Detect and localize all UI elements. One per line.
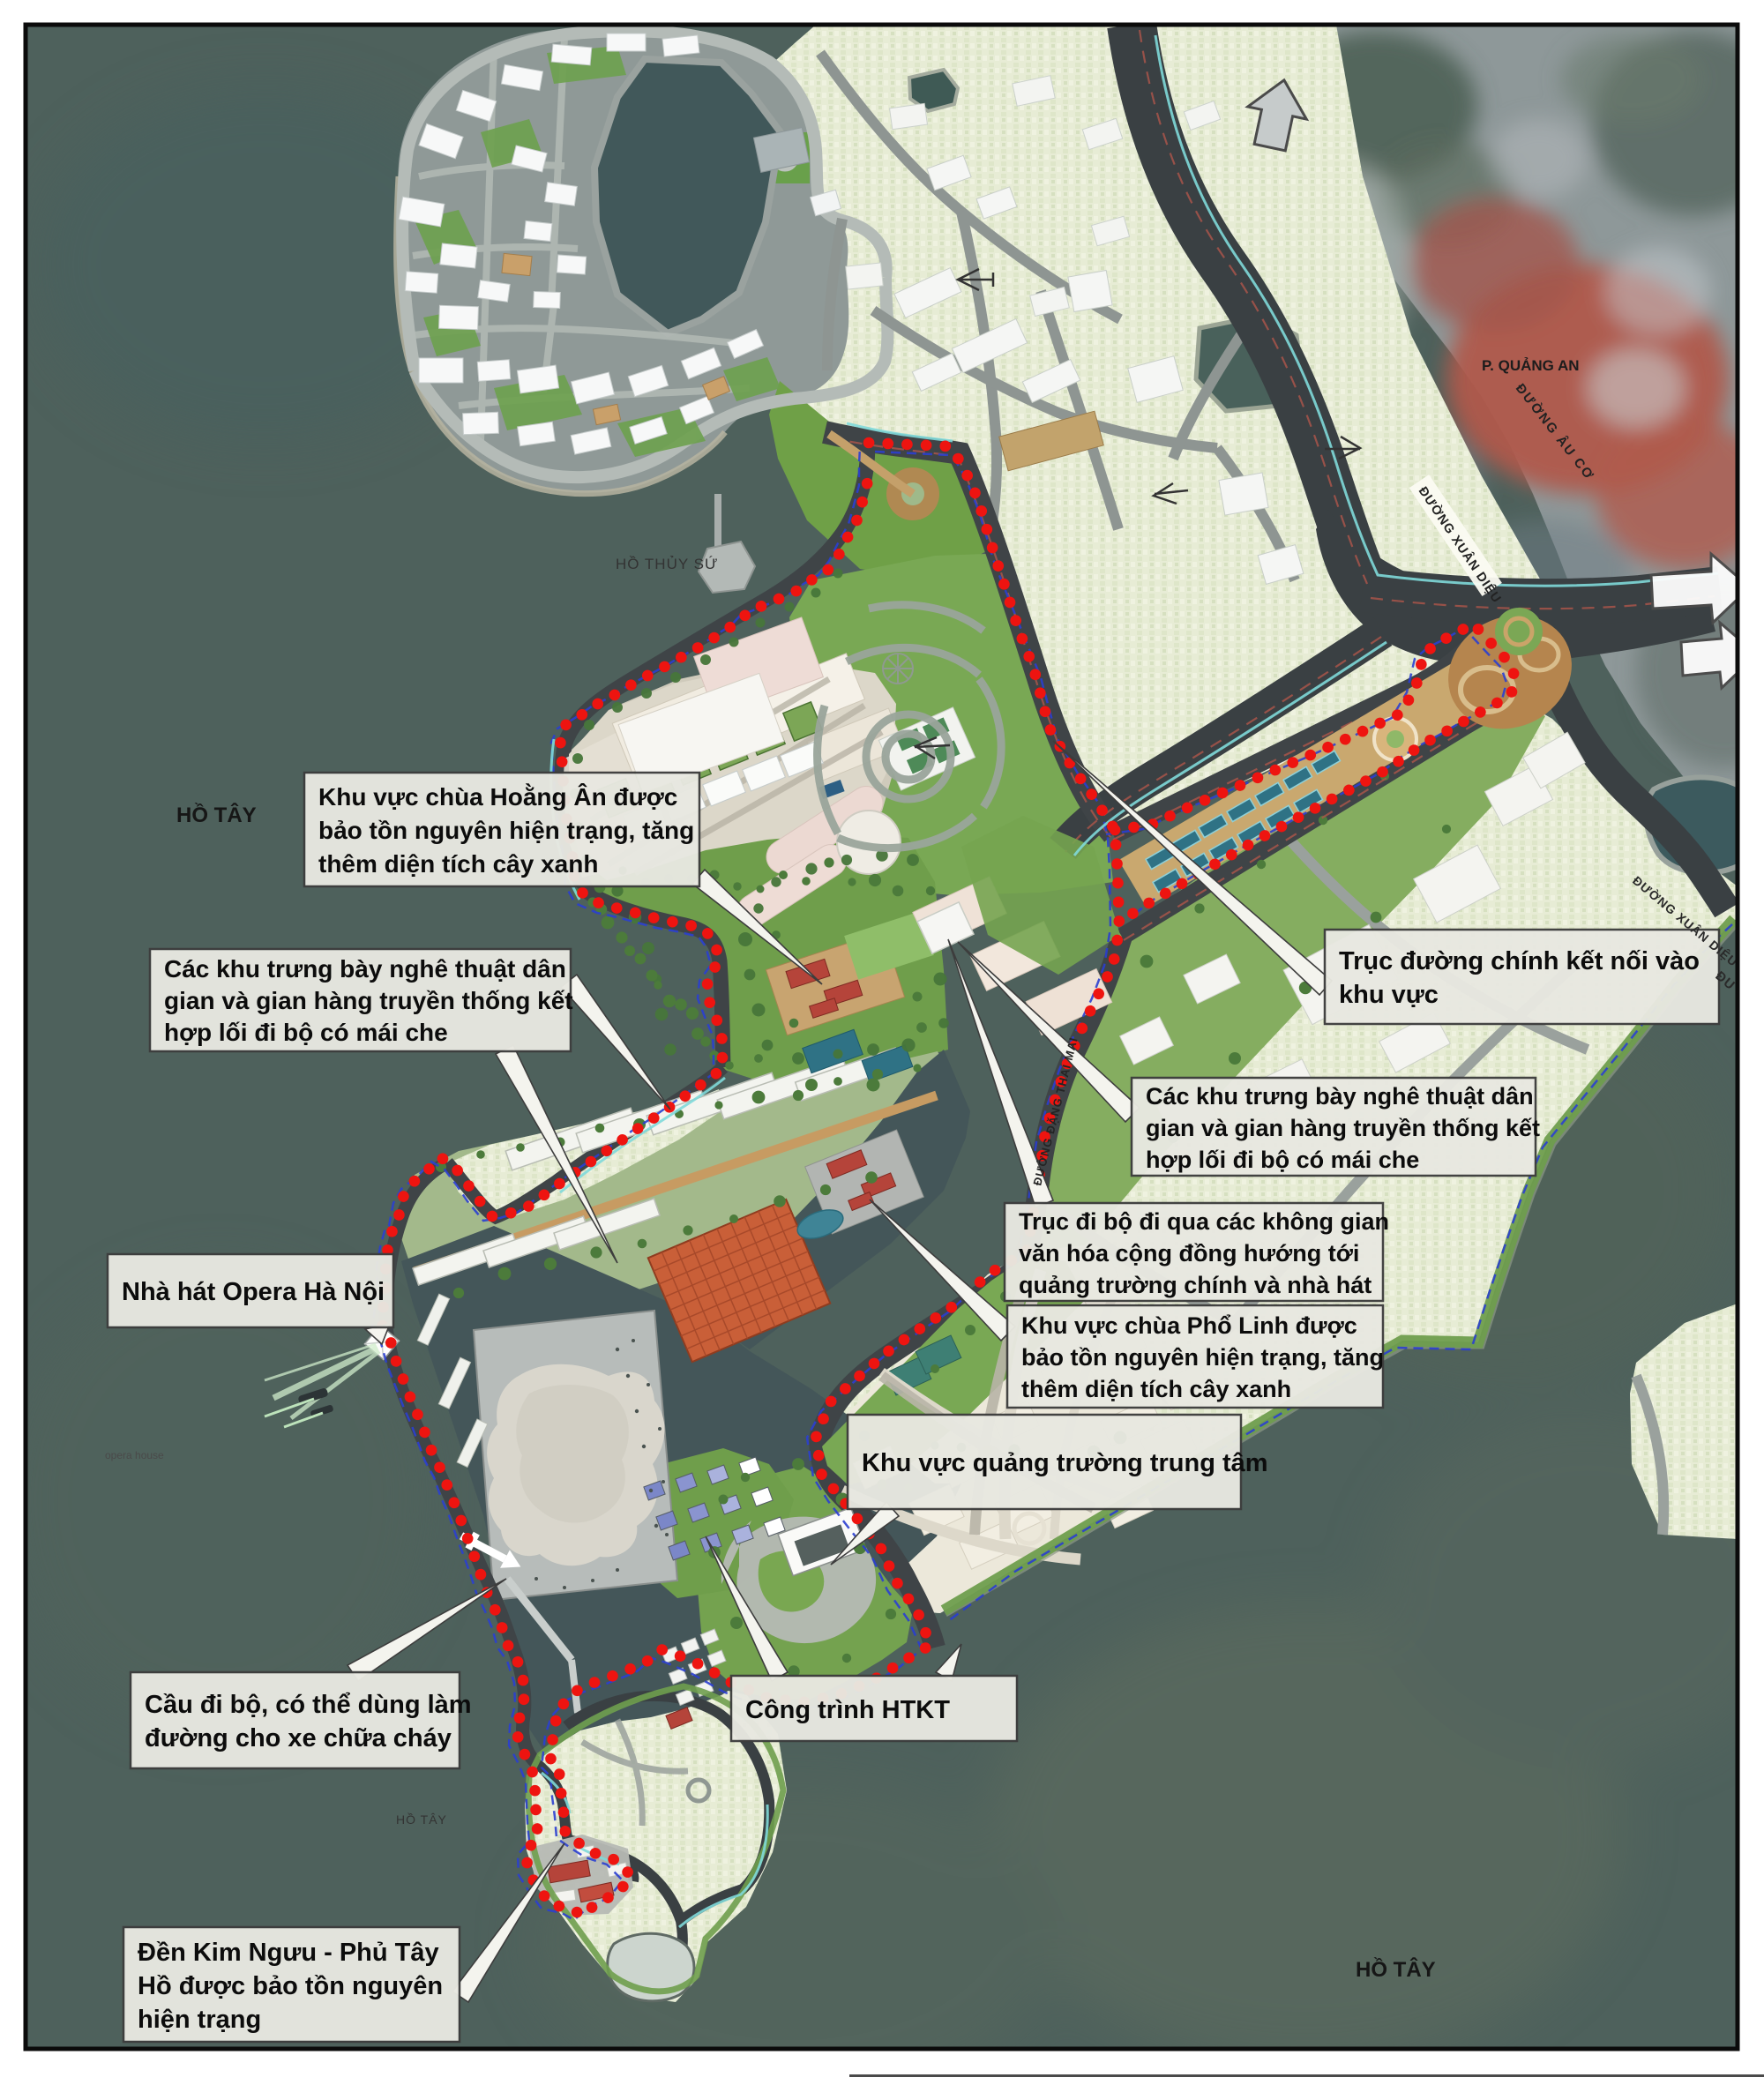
- svg-text:bảo tồn nguyên hiện trạng, tăn: bảo tồn nguyên hiện trạng, tăng: [318, 817, 694, 844]
- svg-text:HỒ THỦY SỨ: HỒ THỦY SỨ: [616, 556, 718, 572]
- svg-text:Nhà hát Opera Hà Nội: Nhà hát Opera Hà Nội: [122, 1278, 385, 1306]
- svg-text:Công trình HTKT: Công trình HTKT: [745, 1696, 950, 1724]
- svg-text:gian và gian hàng truyền thống: gian và gian hàng truyền thống kết: [164, 987, 573, 1014]
- svg-text:Các khu trưng bày nghê thuật d: Các khu trưng bày nghê thuật dân: [164, 955, 566, 983]
- svg-text:Khu vực quảng trường trung tâm: Khu vực quảng trường trung tâm: [862, 1449, 1268, 1477]
- svg-text:Khu vực chùa Phổ Linh được: Khu vực chùa Phổ Linh được: [1021, 1312, 1357, 1339]
- svg-text:P. QUẢNG AN: P. QUẢNG AN: [1482, 357, 1580, 374]
- svg-text:HỒ TÂY: HỒ TÂY: [1356, 1957, 1436, 1982]
- svg-text:Khu vực chùa Hoằng Ân được: Khu vực chùa Hoằng Ân được: [318, 783, 677, 811]
- svg-text:văn hóa cộng đồng hướng tới: văn hóa cộng đồng hướng tới: [1019, 1240, 1359, 1267]
- svg-text:Cầu đi bộ, có thể dùng làm: Cầu đi bộ, có thể dùng làm: [145, 1691, 472, 1719]
- svg-text:opera house: opera house: [105, 1449, 164, 1461]
- svg-text:HỒ TÂY: HỒ TÂY: [176, 803, 257, 827]
- svg-text:Hồ được bảo tồn nguyên: Hồ được bảo tồn nguyên: [138, 1972, 443, 2000]
- svg-text:hợp lối đi bộ có mái che: hợp lối đi bộ có mái che: [164, 1019, 448, 1046]
- svg-text:Trục đường chính kết nối vào: Trục đường chính kết nối vào: [1339, 947, 1700, 975]
- svg-text:quảng trường chính và nhà hát: quảng trường chính và nhà hát: [1019, 1272, 1372, 1298]
- svg-text:Các khu trưng bày nghê thuật d: Các khu trưng bày nghê thuật dân: [1146, 1083, 1534, 1110]
- svg-text:gian và gian hàng truyền thống: gian và gian hàng truyền thống kết: [1146, 1115, 1540, 1141]
- svg-text:hiện trạng: hiện trạng: [138, 2006, 261, 2034]
- svg-text:hợp lối đi bộ có mái che: hợp lối đi bộ có mái che: [1146, 1147, 1419, 1173]
- svg-text:bảo tồn nguyên hiện trạng, tăn: bảo tồn nguyên hiện trạng, tăng: [1021, 1344, 1384, 1371]
- svg-text:thêm diện tích cây xanh: thêm diện tích cây xanh: [318, 850, 598, 878]
- svg-text:HỒ TÂY: HỒ TÂY: [396, 1812, 447, 1827]
- svg-text:thêm diện tích cây xanh: thêm diện tích cây xanh: [1021, 1376, 1291, 1402]
- svg-text:Đền Kim Ngưu - Phủ Tây: Đền Kim Ngưu - Phủ Tây: [138, 1939, 439, 1967]
- svg-text:khu vực: khu vực: [1339, 981, 1439, 1009]
- svg-text:đường cho xe chữa cháy: đường cho xe chữa cháy: [145, 1724, 452, 1752]
- svg-text:Trục đi bộ đi qua các không gi: Trục đi bộ đi qua các không gian: [1019, 1208, 1389, 1235]
